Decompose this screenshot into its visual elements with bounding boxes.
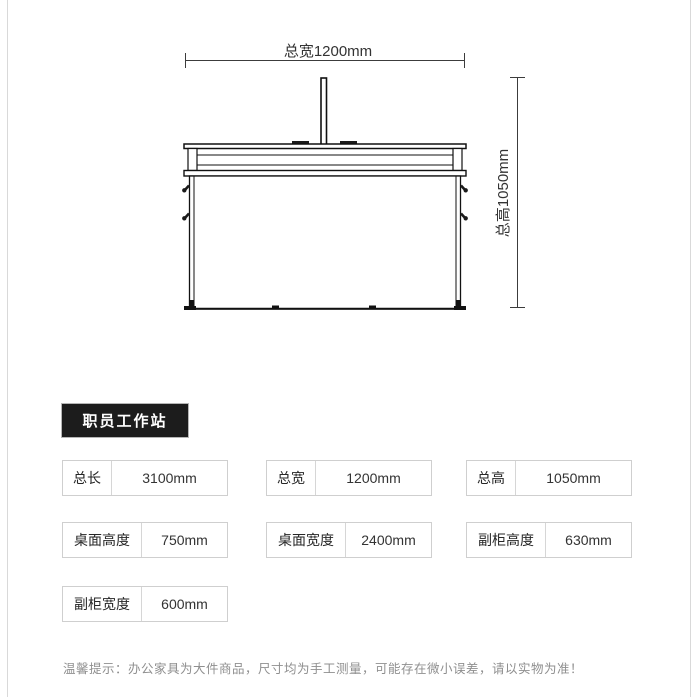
spec-value: 2400mm xyxy=(346,523,431,557)
height-dimension xyxy=(510,77,525,308)
spec-box-total-height: 总高 1050mm xyxy=(466,460,632,496)
spec-label: 总宽 xyxy=(267,461,316,495)
desk-frame xyxy=(184,149,466,177)
divider-screen-panel xyxy=(292,78,357,145)
spec-box-side-cabinet-width: 副柜宽度 600mm xyxy=(62,586,228,622)
desktop-surface xyxy=(184,144,466,149)
spec-value: 1050mm xyxy=(516,461,631,495)
spec-box-total-length: 总长 3100mm xyxy=(62,460,228,496)
spec-label: 总长 xyxy=(63,461,112,495)
product-dimension-page: 总宽1200mm 总高1050mm xyxy=(0,0,700,697)
width-dimension-label: 总宽1200mm xyxy=(284,43,372,60)
spec-box-desktop-height: 桌面高度 750mm xyxy=(62,522,228,558)
spec-value: 750mm xyxy=(142,523,227,557)
dimension-diagram: 总宽1200mm 总高1050mm xyxy=(0,0,700,395)
height-dimension-label: 总高1050mm xyxy=(495,149,512,237)
spec-value: 3100mm xyxy=(112,461,227,495)
measurement-disclaimer: 温馨提示：办公家具为大件商品，尺寸均为手工测量，可能存在微小误差，请以实物为准！ xyxy=(63,658,583,677)
product-title-text: 职员工作站 xyxy=(82,410,167,431)
spec-label: 桌面宽度 xyxy=(267,523,346,557)
cabinet-body xyxy=(190,176,461,309)
spec-value: 600mm xyxy=(142,587,227,621)
spec-box-total-width: 总宽 1200mm xyxy=(266,460,432,496)
spec-box-side-cabinet-height: 副柜高度 630mm xyxy=(466,522,632,558)
spec-label: 总高 xyxy=(467,461,516,495)
spec-value: 1200mm xyxy=(316,461,431,495)
product-title-badge: 职员工作站 xyxy=(61,403,189,438)
spec-box-desktop-width: 桌面宽度 2400mm xyxy=(266,522,432,558)
spec-value: 630mm xyxy=(546,523,631,557)
spec-label: 副柜宽度 xyxy=(63,587,142,621)
spec-label: 副柜高度 xyxy=(467,523,546,557)
spec-label: 桌面高度 xyxy=(63,523,142,557)
